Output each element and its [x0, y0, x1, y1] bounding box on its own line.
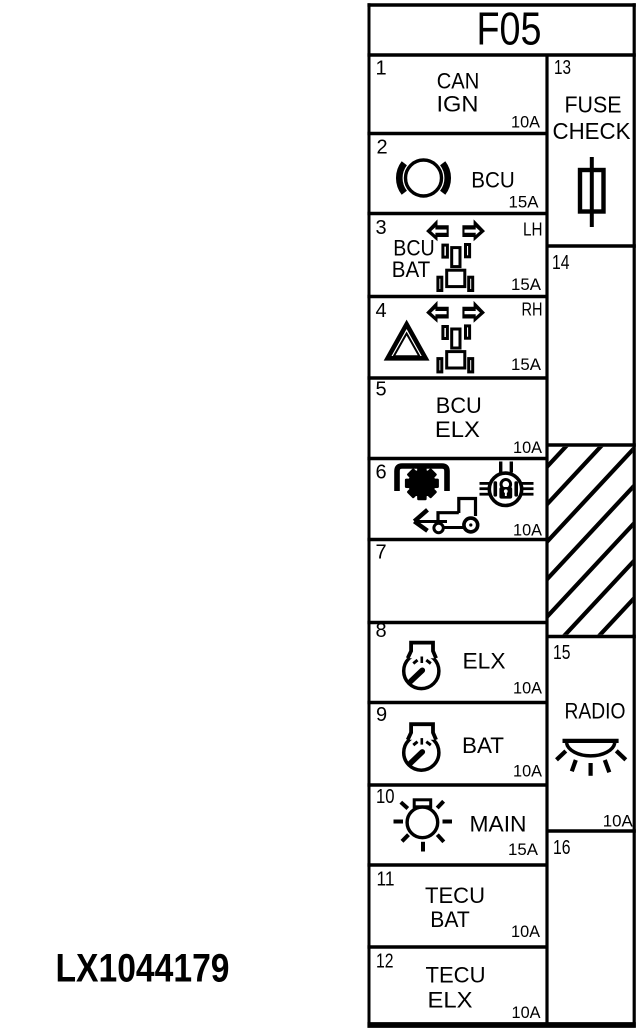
svg-text:F05: F05 — [477, 3, 542, 55]
svg-text:15: 15 — [553, 642, 571, 664]
svg-text:10A: 10A — [513, 679, 543, 698]
svg-text:LX1044179: LX1044179 — [56, 947, 230, 991]
svg-text:12: 12 — [376, 951, 394, 973]
svg-text:15A: 15A — [511, 355, 542, 374]
svg-text:MAIN: MAIN — [470, 812, 527, 837]
svg-text:CHECK: CHECK — [553, 118, 632, 144]
svg-text:7: 7 — [376, 542, 387, 564]
svg-text:LH: LH — [523, 219, 543, 240]
svg-text:10A: 10A — [513, 438, 543, 457]
svg-text:TECU: TECU — [425, 883, 485, 908]
svg-text:BAT: BAT — [392, 257, 431, 282]
svg-text:RADIO: RADIO — [565, 698, 626, 723]
svg-text:15A: 15A — [511, 275, 542, 294]
svg-text:16: 16 — [553, 837, 571, 859]
svg-text:10A: 10A — [603, 812, 634, 831]
svg-text:10A: 10A — [513, 762, 543, 781]
svg-text:10A: 10A — [512, 1003, 542, 1022]
svg-text:IGN: IGN — [437, 92, 479, 117]
svg-text:2: 2 — [377, 137, 388, 159]
svg-text:BAT: BAT — [462, 733, 504, 758]
svg-text:ELX: ELX — [435, 417, 480, 442]
svg-text:10A: 10A — [511, 112, 541, 131]
svg-text:6: 6 — [376, 462, 387, 484]
svg-text:3: 3 — [376, 217, 387, 239]
svg-text:1: 1 — [376, 57, 387, 79]
svg-text:13: 13 — [554, 57, 571, 79]
svg-text:8: 8 — [376, 620, 387, 642]
svg-text:ELX: ELX — [463, 649, 506, 674]
svg-text:10A: 10A — [511, 922, 541, 941]
svg-text:BCU: BCU — [436, 393, 482, 418]
svg-text:TECU: TECU — [426, 963, 486, 988]
svg-text:4: 4 — [376, 300, 387, 322]
svg-text:15A: 15A — [509, 193, 540, 212]
svg-text:5: 5 — [376, 379, 387, 401]
svg-text:15A: 15A — [508, 840, 539, 859]
svg-text:11: 11 — [377, 869, 395, 891]
svg-text:BAT: BAT — [430, 907, 470, 932]
svg-text:9: 9 — [376, 704, 387, 726]
svg-text:10: 10 — [376, 786, 395, 808]
svg-text:10A: 10A — [513, 521, 543, 540]
svg-text:FUSE: FUSE — [565, 91, 622, 117]
svg-text:RH: RH — [522, 299, 543, 320]
svg-text:ELX: ELX — [428, 988, 473, 1013]
svg-text:CAN: CAN — [437, 69, 480, 94]
svg-text:BCU: BCU — [471, 168, 515, 193]
svg-text:14: 14 — [552, 252, 570, 274]
